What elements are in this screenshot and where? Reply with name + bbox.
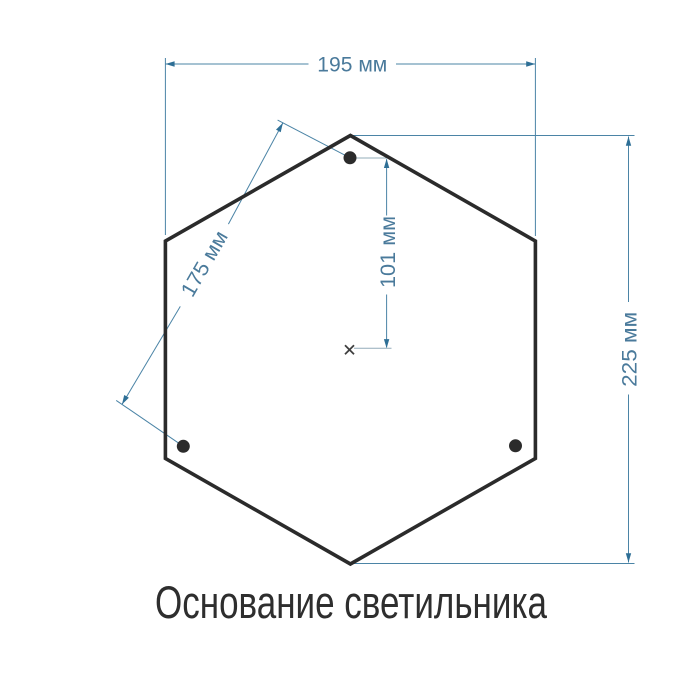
svg-text:Основание светильника: Основание светильника	[155, 577, 548, 628]
svg-text:225 мм: 225 мм	[618, 312, 641, 387]
svg-text:195 мм: 195 мм	[317, 54, 387, 77]
svg-text:101 мм: 101 мм	[377, 216, 400, 288]
